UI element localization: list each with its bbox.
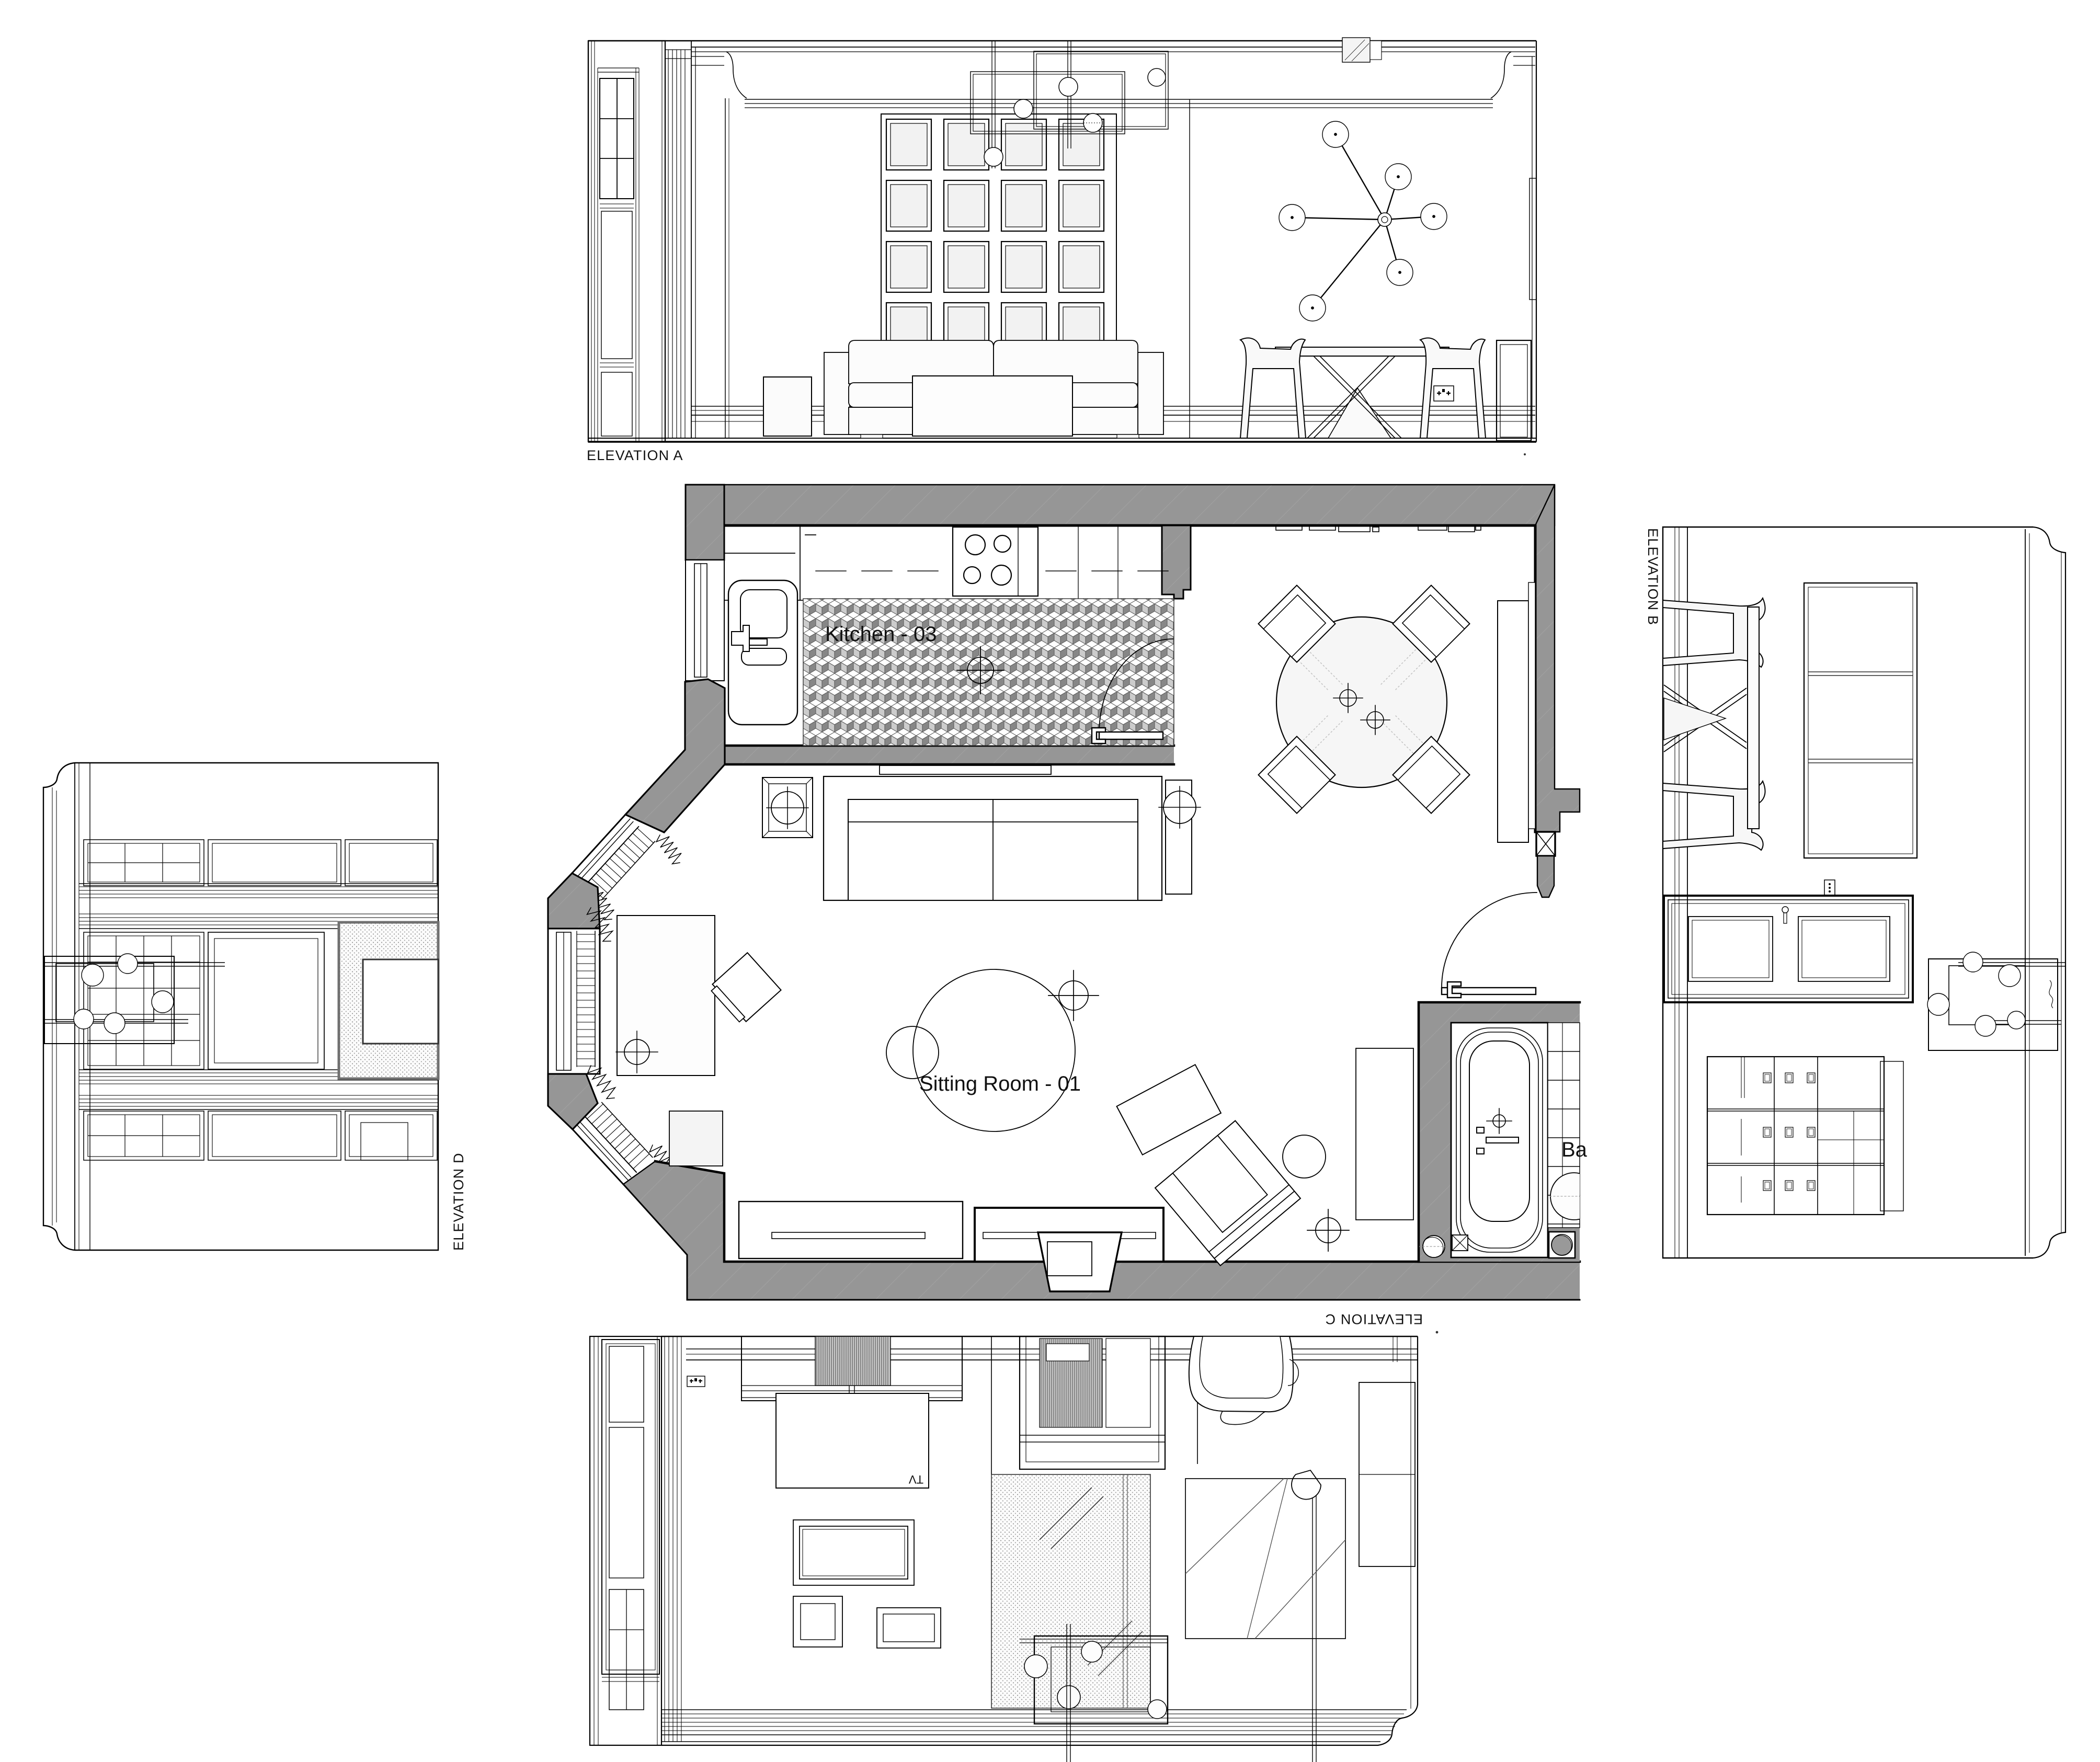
svg-text:TV: TV: [909, 1473, 923, 1486]
svg-text:Ba: Ba: [1561, 1138, 1588, 1161]
svg-text:ELEVATION C: ELEVATION C: [1325, 1311, 1423, 1327]
svg-text:Kitchen - 03: Kitchen - 03: [825, 623, 937, 646]
svg-text:ELEVATION A: ELEVATION A: [587, 448, 683, 463]
svg-text:ELEVATION B: ELEVATION B: [1645, 528, 1661, 625]
svg-text:Sitting Room - 01: Sitting Room - 01: [919, 1072, 1081, 1095]
svg-text:ELEVATION D: ELEVATION D: [451, 1152, 466, 1251]
